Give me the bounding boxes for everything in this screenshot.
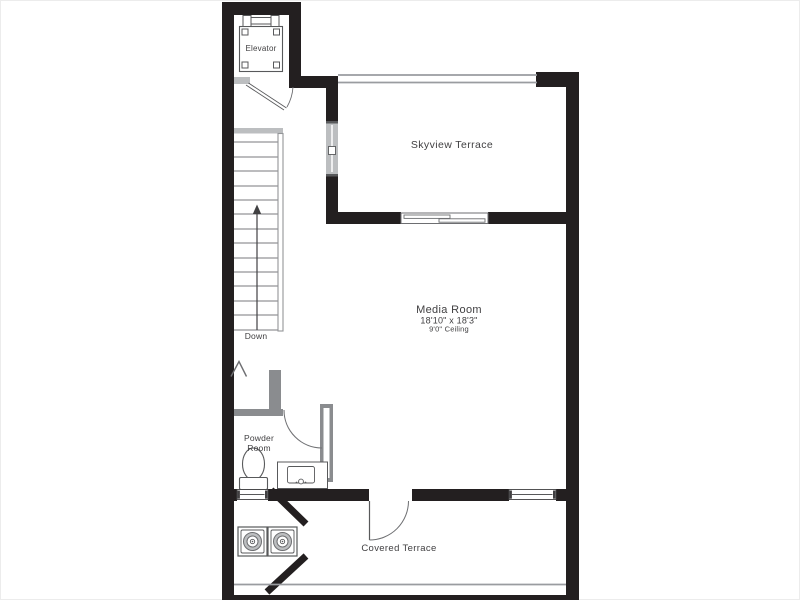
terrace-entry-door [370, 501, 409, 540]
floorplan-page: Elevator Down Skyview Terrace [0, 0, 800, 600]
mediaroom-bottom-wall-d [556, 489, 579, 501]
right-wall [566, 72, 579, 600]
left-wall [222, 2, 234, 600]
elevator-door-mechanism [243, 16, 279, 27]
floor-plan: Elevator Down Skyview Terrace [0, 0, 800, 600]
sink-handle-right [305, 482, 307, 484]
terrace-sliding-door [401, 213, 488, 224]
covered-terrace-label: Covered Terrace [361, 543, 436, 554]
elevator-threshold [234, 77, 250, 84]
powder-door-swing [284, 410, 322, 448]
vanity-sink [278, 462, 328, 489]
skyview-terrace-label: Skyview Terrace [411, 139, 493, 151]
terrace-door-swing [370, 501, 409, 540]
sink-faucet [299, 479, 304, 484]
terrace-opening-marker-lower [267, 556, 306, 592]
terrace-left-wall-upper [326, 84, 338, 122]
stairwell: Down [231, 128, 283, 377]
mediaroom-bottom-wall-a [222, 489, 237, 501]
stair-direction-arrowhead [253, 205, 261, 215]
media-room: Media Room 18'10" x 18'3" 9'0" Ceiling [416, 304, 482, 334]
grill-burner-left [238, 527, 267, 556]
powder-room-label-line2: Room [247, 443, 270, 453]
stair-stringer [278, 134, 283, 332]
bottom-wall-window-right [509, 490, 556, 500]
powder-stub-wall [269, 370, 281, 410]
media-room-label: Media Room [416, 304, 482, 316]
terrace-left-window [326, 121, 338, 177]
elevator: Elevator [234, 16, 293, 111]
mediaroom-bottom-wall-c [412, 489, 509, 501]
bottom-wall-window-left [237, 490, 268, 500]
plan-bottom-edge [222, 595, 579, 600]
covered-terrace: Covered Terrace [234, 490, 566, 593]
powder-top-wall [234, 409, 283, 416]
media-room-ceiling: 9'0" Ceiling [429, 325, 469, 334]
elevator-right-wall [289, 2, 301, 88]
terrace-top-railing [338, 75, 537, 83]
skyview-terrace: Skyview Terrace [326, 75, 537, 224]
sink-handle-left [296, 482, 298, 484]
toilet [240, 448, 268, 490]
powder-room-label-line1: Powder [244, 433, 274, 443]
elevator-label: Elevator [246, 44, 277, 53]
grill-burner-right [268, 527, 297, 556]
stair-direction-label: Down [245, 331, 268, 341]
elevator-door-swing [246, 83, 293, 110]
powder-room: Powder Room [234, 370, 333, 490]
stair-top-cap [234, 128, 283, 134]
toilet-tank [240, 478, 268, 490]
terrace-bottom-wall-right [488, 212, 579, 224]
stair-treads [234, 142, 278, 330]
terrace-bottom-wall-left [326, 212, 401, 224]
